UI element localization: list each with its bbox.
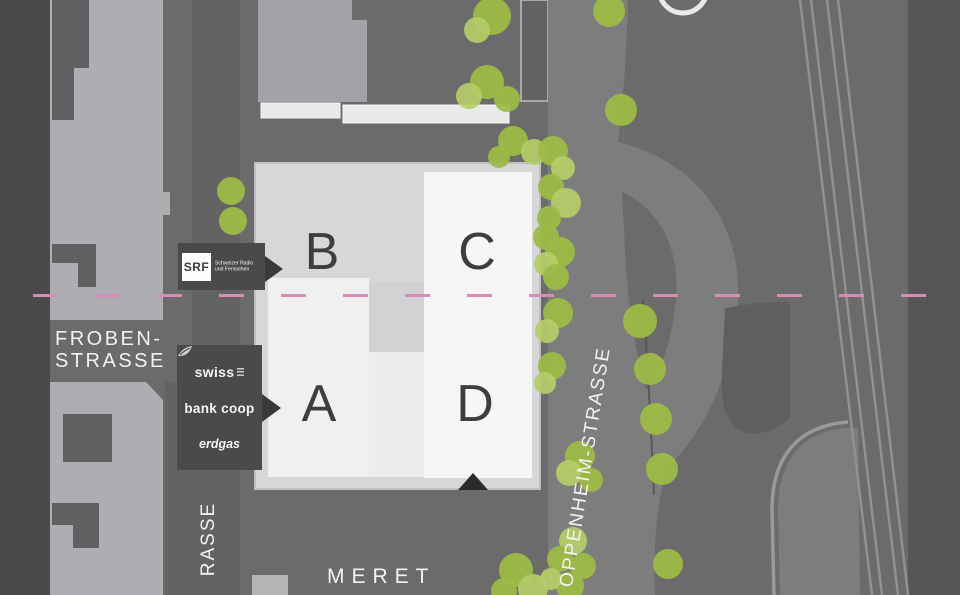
bank-coop-logo: bank coop [184, 401, 254, 416]
street-label-meret: MERET [327, 565, 436, 589]
right-dark-block [908, 0, 960, 595]
city-block-lower-left [50, 382, 163, 595]
srf-logo: SRF [182, 253, 211, 281]
building-letter-d: D [447, 378, 503, 430]
building-letter-c: C [449, 226, 505, 278]
srf-name-line2: und Fernsehen [215, 267, 253, 273]
left-dark-block [0, 0, 50, 595]
building-letter-a: A [291, 378, 347, 430]
walkway-strip [343, 105, 509, 123]
froben-line2: STRASSE [55, 350, 166, 372]
tenants-label-box: swiss bank coop erdgas [177, 345, 262, 470]
bank-coop-brand-row: bank coop [184, 401, 254, 416]
street-label-froben: FROBEN- STRASSE [55, 328, 166, 372]
erdgas-logo: erdgas [199, 437, 240, 451]
erdgas-leaf-icon [177, 345, 193, 357]
site-plan: FROBEN- STRASSE RASSE OPPENHEIM-STRASSE … [0, 0, 960, 595]
street-label-side-street: RASSE [198, 494, 220, 584]
srf-name: Schweizer Radio und Fernsehen [215, 261, 253, 272]
srf-name-line1: Schweizer Radio [215, 261, 253, 267]
building-letter-b: B [294, 226, 350, 278]
small-structure [252, 575, 288, 595]
tram-platform [521, 0, 548, 101]
dark-block-east [722, 302, 790, 434]
building-footprint [63, 414, 112, 462]
froben-line1: FROBEN- [55, 328, 166, 350]
erdgas-brand-row: erdgas [199, 437, 240, 451]
swiss-logo: swiss [195, 364, 235, 380]
site-plan-map [0, 0, 960, 595]
srf-label-box: SRF Schweizer Radio und Fernsehen [178, 243, 265, 290]
swiss-brand-row: swiss [195, 364, 245, 380]
swiss-logo-lines-icon [237, 368, 244, 377]
building-section-mid [369, 352, 424, 477]
top-building [258, 0, 367, 102]
building-courtyard [369, 282, 424, 352]
walkway-strip [261, 103, 340, 118]
